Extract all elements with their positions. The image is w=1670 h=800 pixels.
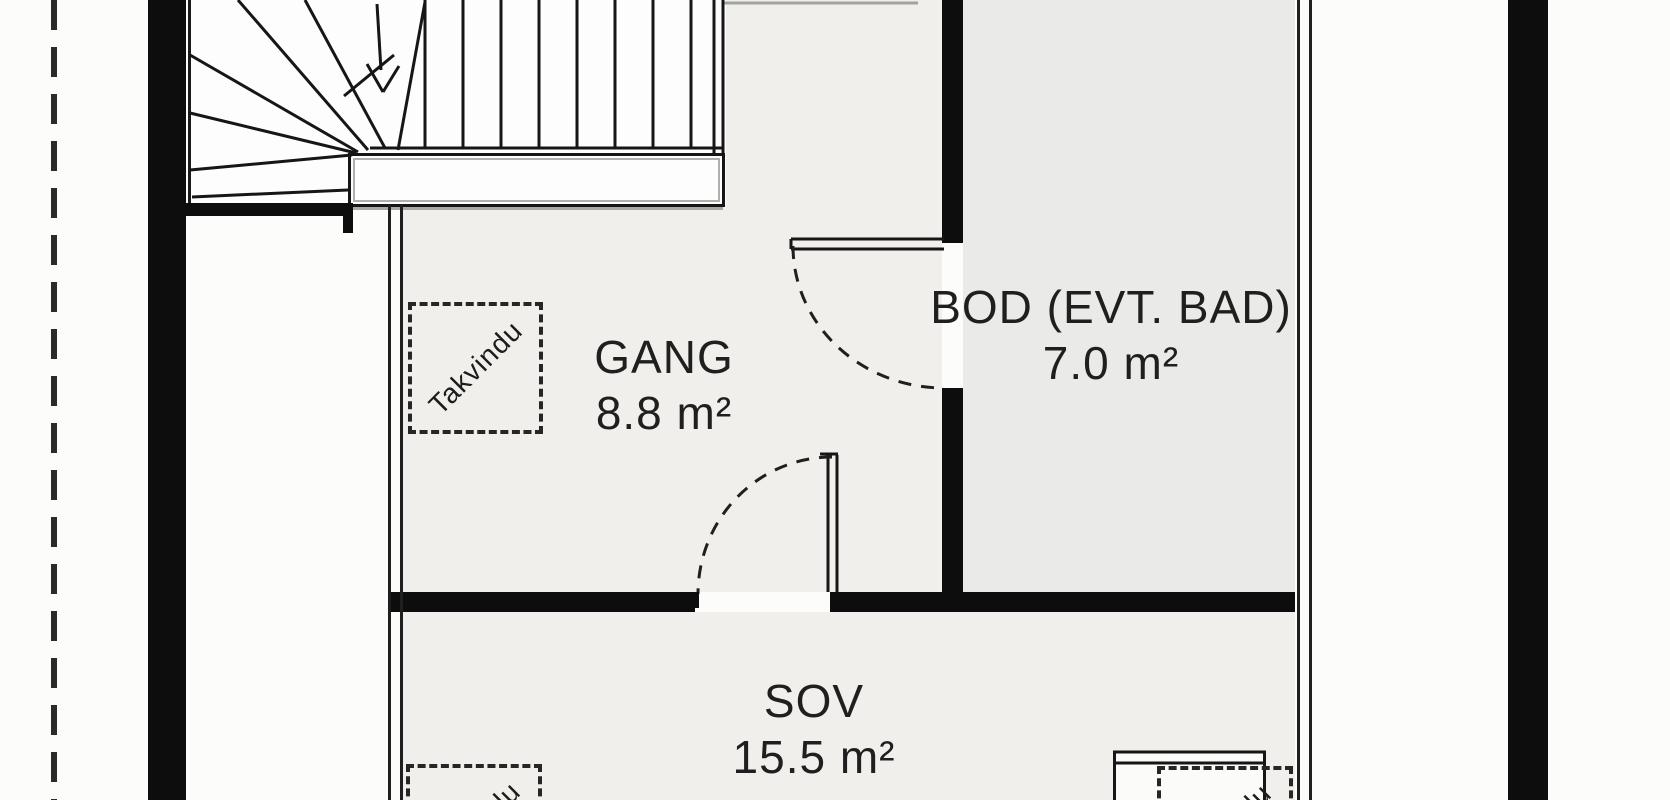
room-label-bod: BOD (EVT. BAD) 7.0 m² [930, 279, 1292, 391]
stair-winder-treads [190, 0, 425, 197]
stair-direction-arrow [344, 4, 399, 96]
knee-wall-left [390, 205, 402, 800]
door-sov-jamb-nub [687, 592, 699, 608]
room-name: GANG [594, 329, 733, 385]
door-bod [791, 239, 944, 388]
room-label-sov: SOV 15.5 m² [733, 673, 896, 785]
room-name: BOD (EVT. BAD) [930, 279, 1292, 335]
knee-wall-right [1299, 0, 1311, 800]
door-bod-swing-arc [793, 246, 944, 388]
room-name: SOV [733, 673, 896, 729]
room-area: 8.8 m² [594, 385, 733, 441]
room-area: 7.0 m² [930, 335, 1292, 391]
door-sov-swing-arc [698, 457, 832, 594]
room-label-gang: GANG 8.8 m² [594, 329, 733, 441]
stair-straight-treads [370, 0, 723, 156]
door-sov [687, 454, 838, 608]
room-area: 15.5 m² [733, 729, 896, 785]
floor-plan: Takvindu Takvindu Takvindu GANG 8.8 m² B… [0, 0, 1670, 800]
